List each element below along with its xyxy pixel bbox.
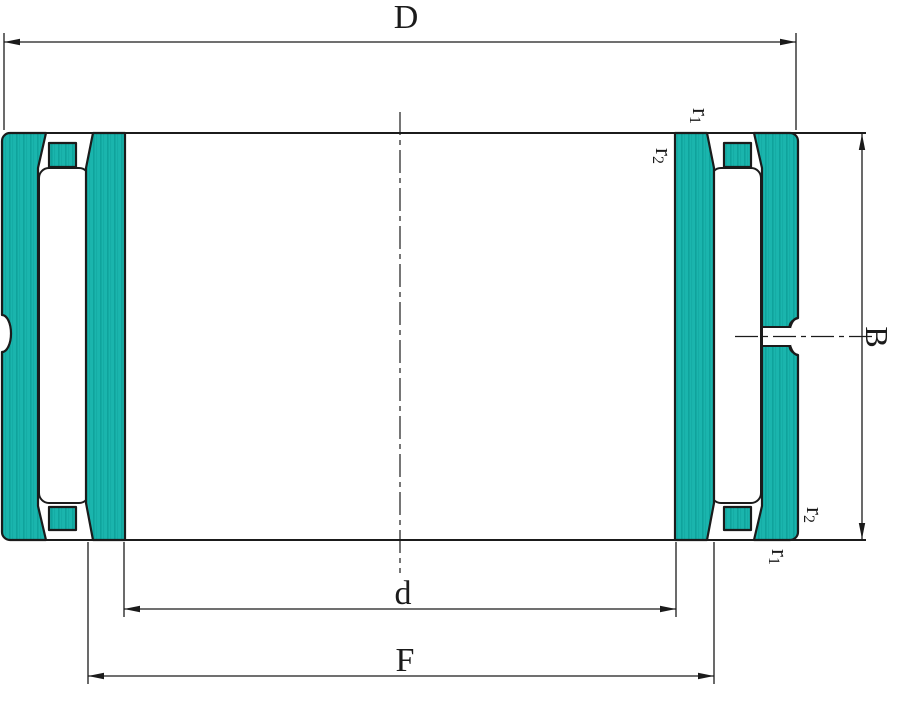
left-needle-roller: [39, 168, 89, 503]
dimension-label-d: d: [395, 575, 412, 612]
arrow-right-icon: [698, 673, 714, 679]
left-cage-top: [49, 143, 76, 167]
drawing-canvas: D d F B r1 r2 r2 r1: [0, 0, 900, 702]
label-r2-top: r2: [650, 148, 677, 164]
right-cage-top: [724, 143, 751, 167]
arrow-right-icon: [780, 39, 796, 45]
dimension-bore-diameter: d: [124, 542, 676, 617]
arrow-left-icon: [124, 606, 140, 612]
dimension-outer-diameter: D: [4, 0, 796, 130]
dimension-width: B: [859, 133, 895, 540]
right-inner-ring: [675, 133, 714, 540]
dimension-raceway-diameter: F: [88, 542, 714, 684]
dimension-label-D: D: [394, 0, 419, 36]
arrow-down-icon: [859, 523, 865, 539]
label-r1-top: r1: [687, 108, 714, 124]
left-bearing-section: [2, 133, 125, 540]
arrow-left-icon: [88, 673, 104, 679]
right-cage-bottom: [724, 507, 751, 530]
arrow-up-icon: [859, 134, 865, 150]
left-inner-ring: [86, 133, 125, 540]
bearing-technical-drawing: D d F B r1 r2 r2 r1: [0, 0, 900, 702]
dimension-label-B: B: [859, 326, 895, 347]
right-needle-roller: [711, 168, 761, 503]
left-cage-bottom: [49, 507, 76, 530]
right-bearing-section: [675, 133, 872, 540]
label-r2-bottom: r2: [801, 507, 828, 523]
label-r1-bottom: r1: [766, 549, 793, 565]
arrow-left-icon: [4, 39, 20, 45]
arrow-right-icon: [660, 606, 676, 612]
dimension-label-F: F: [396, 642, 415, 679]
